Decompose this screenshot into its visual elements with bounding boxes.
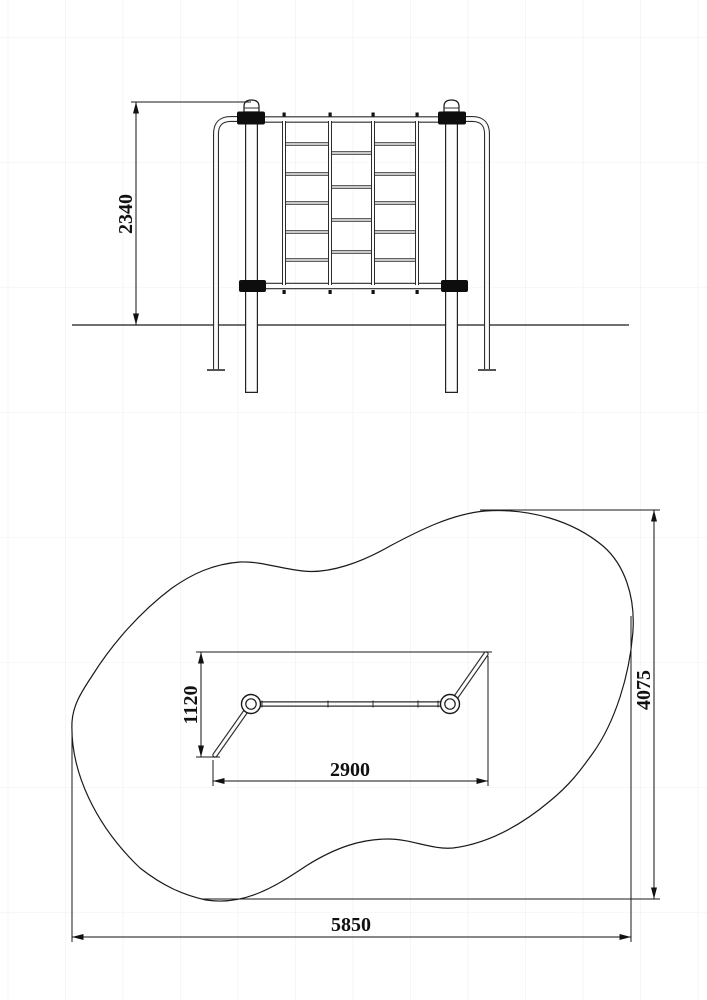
rail-clamps: [237, 112, 468, 293]
plan-equipment: [215, 654, 486, 755]
right-post-cap: [444, 100, 459, 112]
clamp-top-right: [438, 112, 466, 125]
dim-elevation-height-label: 2340: [115, 194, 137, 234]
clamp-bottom-left: [239, 280, 266, 292]
plan-right-leg: [456, 654, 486, 697]
climbing-net: [283, 113, 419, 295]
dim-equipment-width-label: 2900: [330, 759, 370, 781]
dim-equipment-width: 2900: [213, 656, 488, 786]
plan-left-post-ring: [242, 695, 261, 714]
plan-top-bar: [258, 701, 443, 708]
plan-view: 1120 2900 4075 5850: [72, 510, 660, 942]
plan-right-post-ring: [441, 695, 460, 714]
left-post: [244, 100, 259, 393]
clamp-top-left: [237, 112, 265, 125]
dim-elevation-height: 2340: [115, 102, 251, 325]
frame-left-leg: [207, 119, 240, 370]
technical-drawing-sheet: 2340: [0, 0, 707, 1000]
drawing-svg: 2340: [0, 0, 707, 1000]
plan-left-leg: [215, 711, 246, 755]
net-rungs-right: [375, 144, 415, 260]
frame-right-leg: [463, 119, 496, 370]
dim-zone-depth-label: 4075: [633, 670, 655, 710]
clamp-bottom-right: [441, 280, 468, 292]
dim-equipment-depth-label: 1120: [180, 686, 202, 725]
net-rungs-middle: [332, 153, 371, 252]
dim-zone-width-label: 5850: [331, 914, 371, 936]
front-elevation-view: 2340: [72, 100, 629, 393]
right-post: [444, 100, 459, 393]
net-rungs-left: [286, 144, 328, 260]
